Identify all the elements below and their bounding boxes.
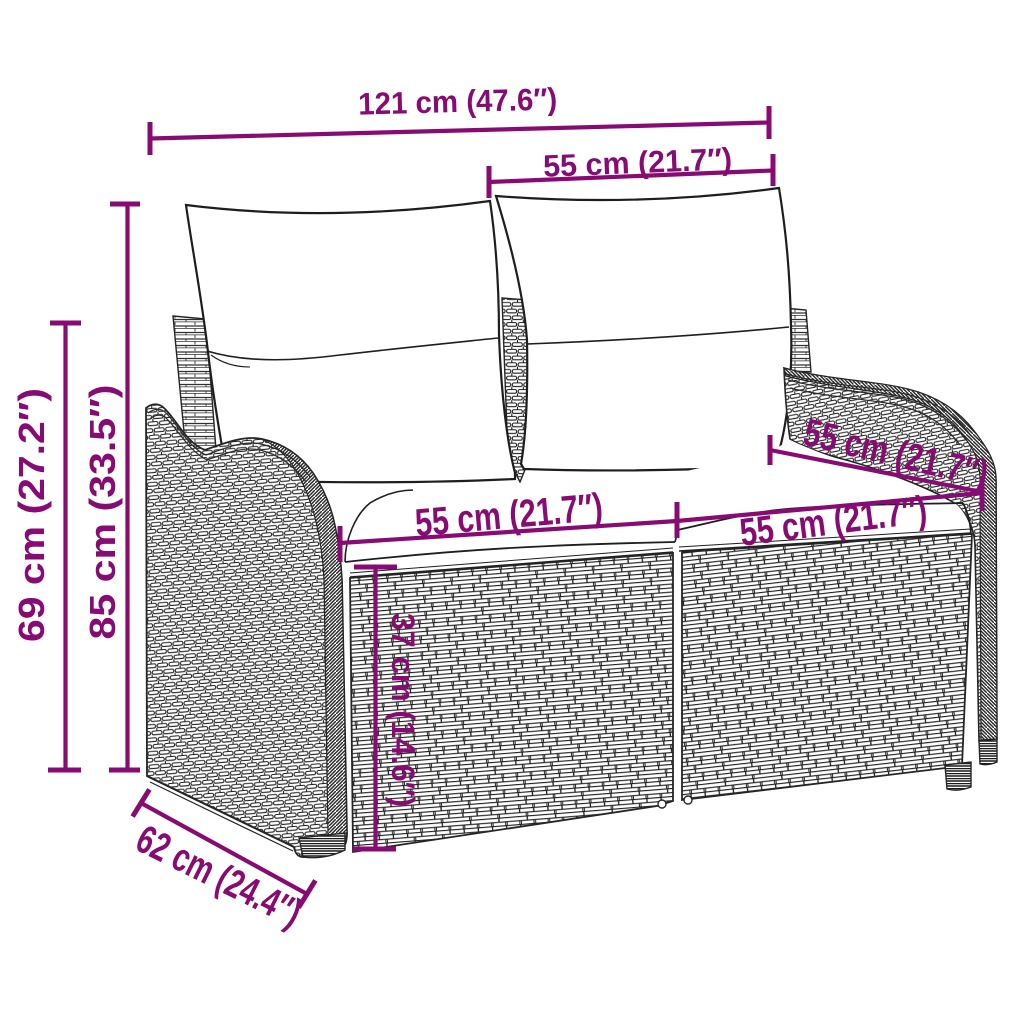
svg-text:121 cm (47.6″): 121 cm (47.6″) bbox=[358, 81, 558, 121]
svg-text:85 cm (33.5″): 85 cm (33.5″) bbox=[82, 385, 123, 640]
svg-text:37 cm (14.6″): 37 cm (14.6″) bbox=[385, 613, 421, 807]
svg-text:69 cm (27.2″): 69 cm (27.2″) bbox=[11, 388, 52, 642]
